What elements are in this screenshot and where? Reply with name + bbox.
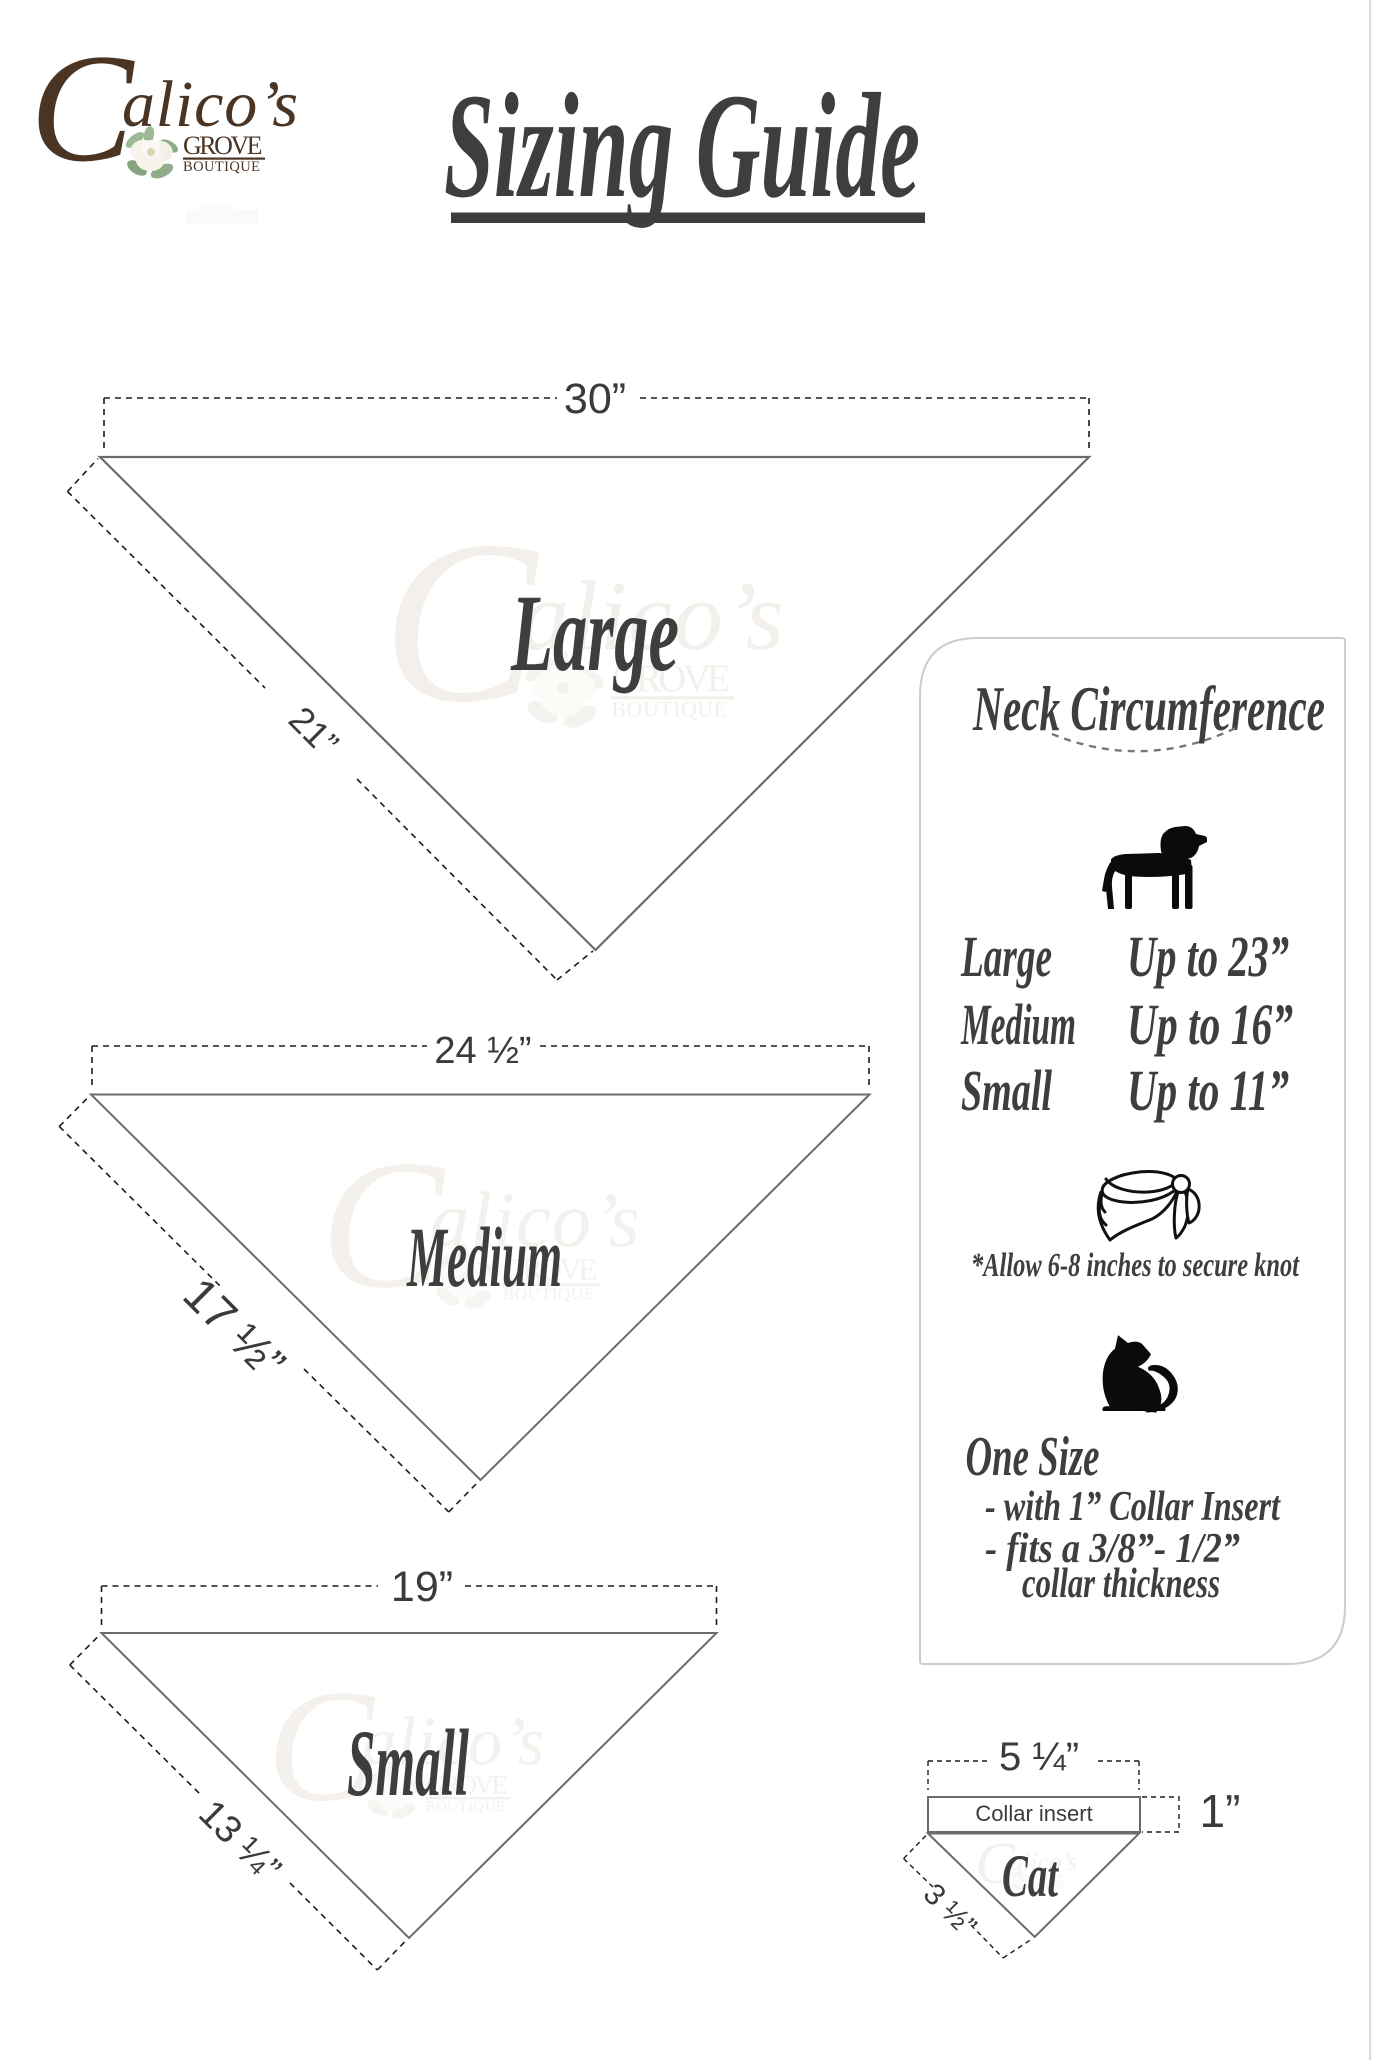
svg-text:21”: 21” (281, 698, 347, 764)
svg-text:Large: Large (960, 924, 1052, 989)
svg-text:19”: 19” (391, 1563, 453, 1611)
svg-text:- with 1” Collar Insert: - with 1” Collar Insert (985, 1484, 1281, 1530)
svg-text:Small: Small (347, 1710, 469, 1816)
svg-text:24 ½”: 24 ½” (434, 1030, 531, 1072)
svg-text:17 ½”: 17 ½” (173, 1267, 295, 1389)
svg-text:Collar insert: Collar insert (975, 1801, 1092, 1826)
svg-text:Up to 11”: Up to 11” (1127, 1058, 1289, 1123)
svg-text:Sizing Guide: Sizing Guide (444, 63, 920, 229)
svg-text:*Allow 6-8 inches to secure kn: *Allow 6-8 inches to secure knot (971, 1247, 1300, 1284)
svg-text:Large: Large (510, 572, 679, 694)
svg-text:Medium: Medium (960, 992, 1076, 1057)
svg-text:One Size: One Size (966, 1426, 1100, 1488)
svg-text:Medium: Medium (406, 1209, 562, 1305)
svg-text:1”: 1” (1200, 1785, 1241, 1837)
svg-text:5 ¼”: 5 ¼” (999, 1735, 1079, 1779)
svg-text:collar thickness: collar thickness (1022, 1561, 1220, 1607)
svg-text:Small: Small (961, 1058, 1053, 1123)
svg-text:Neck Circumference: Neck Circumference (972, 673, 1325, 744)
svg-text:Up to 16”: Up to 16” (1127, 992, 1293, 1057)
svg-text:Cat: Cat (1002, 1843, 1059, 1909)
svg-text:Up to 23”: Up to 23” (1127, 924, 1289, 989)
svg-text:30”: 30” (564, 375, 626, 423)
svg-text:3 ½”: 3 ½” (917, 1877, 983, 1943)
